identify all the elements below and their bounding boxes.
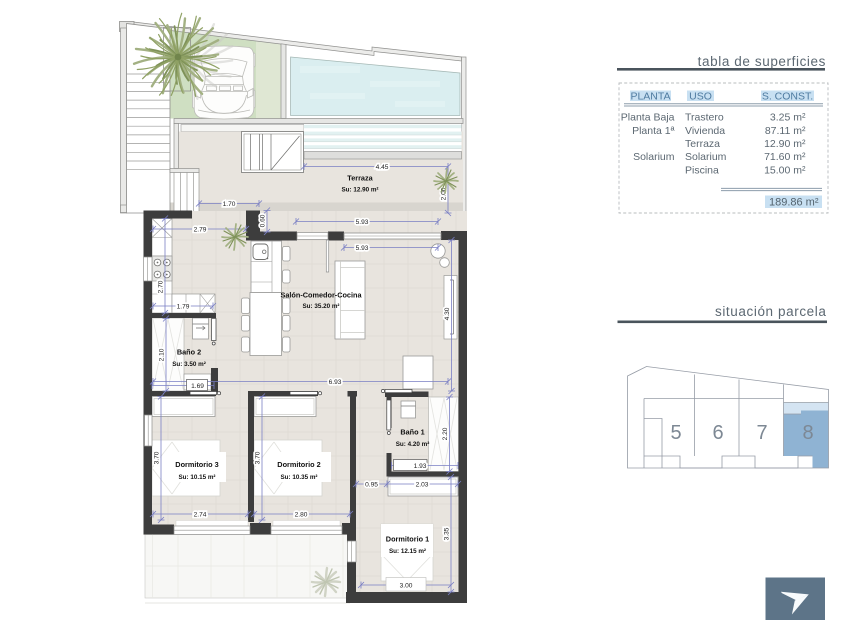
svg-text:87.11 m²: 87.11 m²	[765, 125, 806, 137]
svg-text:Su: 35.20 m²: Su: 35.20 m²	[302, 303, 339, 310]
svg-text:2.03: 2.03	[416, 482, 429, 489]
svg-text:Dormitorio 2: Dormitorio 2	[277, 460, 320, 469]
svg-text:Su: 10.15 m²: Su: 10.15 m²	[178, 474, 215, 481]
svg-text:Planta Baja: Planta Baja	[621, 112, 675, 124]
svg-text:Terraza: Terraza	[347, 174, 373, 183]
svg-text:2.20: 2.20	[442, 427, 449, 440]
svg-text:Su: 4.20 m²: Su: 4.20 m²	[396, 441, 430, 448]
svg-text:3.70: 3.70	[255, 451, 262, 464]
svg-text:7: 7	[756, 422, 767, 444]
svg-text:3.35: 3.35	[444, 527, 451, 540]
svg-text:71.60 m²: 71.60 m²	[764, 151, 806, 163]
svg-text:Terraza: Terraza	[685, 138, 720, 150]
svg-text:4.30: 4.30	[444, 307, 451, 320]
svg-text:Su: 10.35 m²: Su: 10.35 m²	[280, 474, 317, 481]
svg-text:0.60: 0.60	[260, 214, 267, 227]
svg-text:0.95: 0.95	[365, 482, 378, 489]
svg-text:6: 6	[712, 422, 723, 444]
svg-text:Salón-Comedor-Cocina: Salón-Comedor-Cocina	[280, 291, 362, 300]
svg-text:Su: 3.50 m²: Su: 3.50 m²	[172, 361, 206, 368]
svg-text:5: 5	[670, 422, 681, 444]
svg-text:Solarium: Solarium	[685, 151, 727, 163]
svg-text:2.10: 2.10	[159, 348, 166, 361]
svg-text:1.79: 1.79	[177, 304, 190, 311]
svg-text:6.93: 6.93	[329, 379, 342, 386]
svg-text:PLANTA: PLANTA	[630, 91, 670, 103]
svg-text:2.70: 2.70	[158, 280, 165, 293]
svg-text:S. CONST.: S. CONST.	[762, 91, 813, 103]
svg-text:Planta 1ª: Planta 1ª	[632, 125, 675, 137]
svg-text:8: 8	[802, 422, 813, 444]
svg-text:3.70: 3.70	[154, 451, 161, 464]
svg-text:4.45: 4.45	[376, 164, 389, 171]
svg-text:situación parcela: situación parcela	[715, 304, 827, 319]
svg-text:1.69: 1.69	[191, 383, 204, 390]
svg-text:1.70: 1.70	[223, 201, 236, 208]
svg-text:Dormitorio 3: Dormitorio 3	[175, 460, 218, 469]
svg-text:USO: USO	[689, 91, 712, 103]
svg-text:Su: 12.90 m²: Su: 12.90 m²	[341, 187, 378, 194]
svg-text:Vivienda: Vivienda	[685, 125, 725, 137]
svg-text:Su: 12.15 m²: Su: 12.15 m²	[389, 548, 426, 555]
svg-text:Piscina: Piscina	[685, 165, 719, 177]
svg-text:5.93: 5.93	[356, 219, 369, 226]
svg-text:5.93: 5.93	[356, 245, 369, 252]
svg-text:2.79: 2.79	[194, 227, 207, 234]
svg-text:Solarium: Solarium	[633, 151, 675, 163]
svg-text:2.74: 2.74	[194, 512, 207, 519]
svg-text:15.00 m²: 15.00 m²	[764, 165, 806, 177]
svg-text:Trastero: Trastero	[685, 112, 724, 124]
svg-text:1.93: 1.93	[414, 463, 427, 470]
svg-text:12.90 m²: 12.90 m²	[764, 138, 806, 150]
svg-text:2.80: 2.80	[295, 512, 308, 519]
svg-text:tabla de superficies: tabla de superficies	[698, 54, 826, 69]
svg-text:3.00: 3.00	[400, 583, 413, 590]
svg-text:3.25 m²: 3.25 m²	[770, 112, 806, 124]
svg-text:Baño 2: Baño 2	[177, 348, 201, 357]
svg-text:Baño 1: Baño 1	[400, 428, 424, 437]
svg-text:189.86 m²: 189.86 m²	[769, 197, 819, 209]
svg-text:Dormitorio 1: Dormitorio 1	[386, 535, 429, 544]
